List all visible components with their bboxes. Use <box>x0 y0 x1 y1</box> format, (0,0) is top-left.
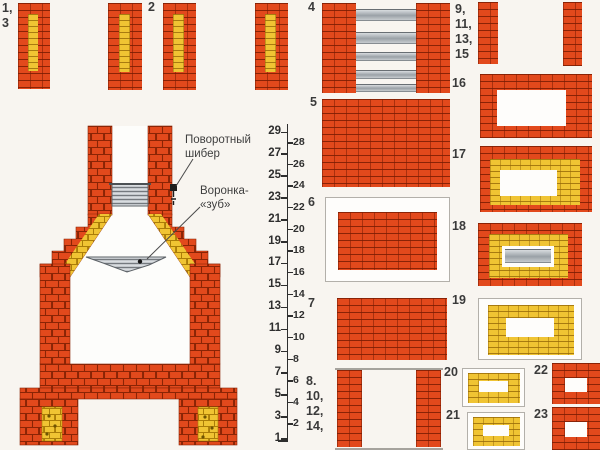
ruler-tick <box>281 175 287 177</box>
brick-course-diagram: Поворотный шибер Воронка- «зуб» 29272523… <box>0 0 600 450</box>
course-plate-9-11-13-15 <box>478 2 582 66</box>
course-plate-20 <box>462 368 525 407</box>
ruler-tick <box>281 263 287 265</box>
course-plate-8-10-12-14 <box>335 368 443 450</box>
ash-insert-right <box>198 407 218 441</box>
ruler-number-29: 29 <box>255 125 281 137</box>
brickwork-part <box>356 84 416 92</box>
tooth-pivot-dot <box>138 259 142 263</box>
tooth-annotation-line1: Воронка- <box>200 185 249 197</box>
ruler-number-14: 14 <box>293 288 305 300</box>
course-number-label-2: 2 <box>148 0 155 15</box>
ruler-tick <box>288 294 293 296</box>
ruler-tick <box>281 351 287 353</box>
course-plate-2 <box>163 3 196 90</box>
brickwork-part <box>565 378 587 392</box>
ruler-number-20: 20 <box>293 223 305 235</box>
chimney-column-left <box>88 126 112 215</box>
course-number-label-21: 21 <box>446 408 460 423</box>
brickwork-part <box>265 14 276 71</box>
course-number-label-6: 6 <box>308 195 315 210</box>
course-plate-18 <box>478 223 582 286</box>
damper-annotation-line2: шибер <box>185 148 220 160</box>
ruler-number-12: 12 <box>293 309 305 321</box>
ruler-tick <box>281 219 287 221</box>
ruler-number-25: 25 <box>255 169 281 181</box>
course-plate-2a <box>108 3 142 90</box>
course-number-label-8-10-12-14: 8. 10, 12, 14, <box>306 374 323 434</box>
ruler-number-7: 7 <box>255 366 281 378</box>
ruler-number-19: 19 <box>255 235 281 247</box>
ruler-number-4: 4 <box>293 396 299 408</box>
ruler-tick <box>288 359 293 361</box>
brickwork-part <box>337 370 362 447</box>
ruler-number-26: 26 <box>293 158 305 170</box>
ruler-tick <box>288 185 293 187</box>
course-plate-6 <box>325 197 450 282</box>
brickwork-part <box>478 2 498 64</box>
course-plate-21 <box>467 412 525 450</box>
ruler-number-6: 6 <box>293 374 299 386</box>
brickwork-part <box>497 90 566 126</box>
course-number-label-5: 5 <box>310 95 317 110</box>
course-number-label-17: 17 <box>452 147 466 162</box>
brickwork-part <box>356 32 416 45</box>
ruler-tick <box>281 416 287 418</box>
ruler-number-8: 8 <box>293 353 299 365</box>
course-plate-7 <box>337 298 447 360</box>
brickwork-part <box>416 3 450 93</box>
chimney-column-right <box>148 126 172 215</box>
brickwork-part <box>356 9 416 21</box>
ruler-number-18: 18 <box>293 244 305 256</box>
ruler-tick <box>288 164 293 166</box>
ruler-tick <box>288 142 293 144</box>
brickwork-part <box>119 14 130 71</box>
course-number-label-20: 20 <box>444 365 458 380</box>
ruler-number-11: 11 <box>255 322 281 334</box>
ruler-tick <box>288 337 293 339</box>
ruler-number-28: 28 <box>293 136 305 148</box>
ruler-tick <box>288 315 293 317</box>
course-plate-16 <box>480 74 592 138</box>
course-plate-2b <box>255 3 288 90</box>
tooth-annotation: Воронка- «зуб» <box>200 185 249 212</box>
ruler-tick <box>288 207 293 209</box>
ruler-tick <box>281 241 287 243</box>
course-number-label-4: 4 <box>308 0 315 15</box>
ruler-number-15: 15 <box>255 278 281 290</box>
course-plate-5 <box>322 99 450 187</box>
ruler-number-9: 9 <box>255 344 281 356</box>
damper-handle <box>170 184 177 191</box>
ruler-number-2: 2 <box>293 417 299 429</box>
brickwork-part <box>356 70 416 79</box>
brickwork-part <box>338 212 436 270</box>
ruler-number-1: 1 <box>255 432 281 444</box>
hearth-course-lower <box>20 388 237 399</box>
firebox-column-left <box>40 264 70 364</box>
ruler-number-23: 23 <box>255 191 281 203</box>
course-number-label-18: 18 <box>452 219 466 234</box>
ruler-number-24: 24 <box>293 179 305 191</box>
ruler-tick <box>281 372 287 374</box>
brickwork-part <box>500 170 557 196</box>
ruler-tick <box>288 250 293 252</box>
course-plate-1-3 <box>18 3 50 89</box>
course-plate-19 <box>478 298 582 360</box>
ruler-number-22: 22 <box>293 201 305 213</box>
brickwork-part <box>356 52 416 61</box>
course-number-label-9-11-13-15: 9, 11, 13, 15 <box>455 2 472 62</box>
brickwork-part <box>173 14 184 71</box>
ruler-number-21: 21 <box>255 213 281 225</box>
course-number-label-19: 19 <box>452 293 466 308</box>
ash-insert-left <box>42 407 62 441</box>
course-number-label-23: 23 <box>534 407 548 422</box>
ruler-tick <box>281 307 287 309</box>
ruler-tick <box>288 423 293 425</box>
course-plate-23 <box>552 407 600 450</box>
ruler-tick <box>281 197 287 199</box>
ruler-tick <box>288 272 293 274</box>
ruler-number-3: 3 <box>255 410 281 422</box>
course-plate-4 <box>322 3 450 93</box>
ruler-tick <box>281 153 287 155</box>
brickwork-part <box>479 381 508 392</box>
ruler-number-16: 16 <box>293 266 305 278</box>
ruler-tick <box>288 402 293 404</box>
brickwork-part <box>322 3 356 93</box>
course-plate-17 <box>480 146 592 212</box>
ruler-number-5: 5 <box>255 388 281 400</box>
ruler-number-10: 10 <box>293 331 305 343</box>
ruler-number-17: 17 <box>255 256 281 268</box>
damper-plate <box>112 184 148 206</box>
ruler-tick <box>281 132 287 134</box>
course-number-label-7: 7 <box>308 296 315 311</box>
course-number-label-16: 16 <box>452 76 466 91</box>
course-number-label-22: 22 <box>534 363 548 378</box>
brickwork-part <box>505 249 551 263</box>
chimney-flue <box>112 126 148 186</box>
firebox-column-right <box>190 264 220 364</box>
damper-annotation-line1: Поворотный <box>185 134 251 146</box>
course-plate-22 <box>552 363 600 404</box>
brickwork-part <box>28 14 39 71</box>
ruler-number-13: 13 <box>255 300 281 312</box>
brickwork-part <box>416 370 441 447</box>
brickwork-part <box>563 2 582 66</box>
leader-line-damper <box>176 159 193 186</box>
ruler-tick <box>281 394 287 396</box>
course-number-label-1-3: 1, 3 <box>2 1 12 31</box>
ruler-number-27: 27 <box>255 147 281 159</box>
tooth-annotation-line2: «зуб» <box>200 199 230 211</box>
ruler-tick <box>281 438 287 440</box>
ruler-tick <box>288 380 293 382</box>
ruler-tick <box>281 285 287 287</box>
hearth-course-upper <box>40 364 220 388</box>
damper-annotation: Поворотный шибер <box>185 134 251 161</box>
brickwork-part <box>565 422 587 437</box>
brickwork-part <box>506 318 555 337</box>
ruler-tick <box>281 329 287 331</box>
ruler-tick <box>288 229 293 231</box>
brickwork-part <box>483 425 510 436</box>
